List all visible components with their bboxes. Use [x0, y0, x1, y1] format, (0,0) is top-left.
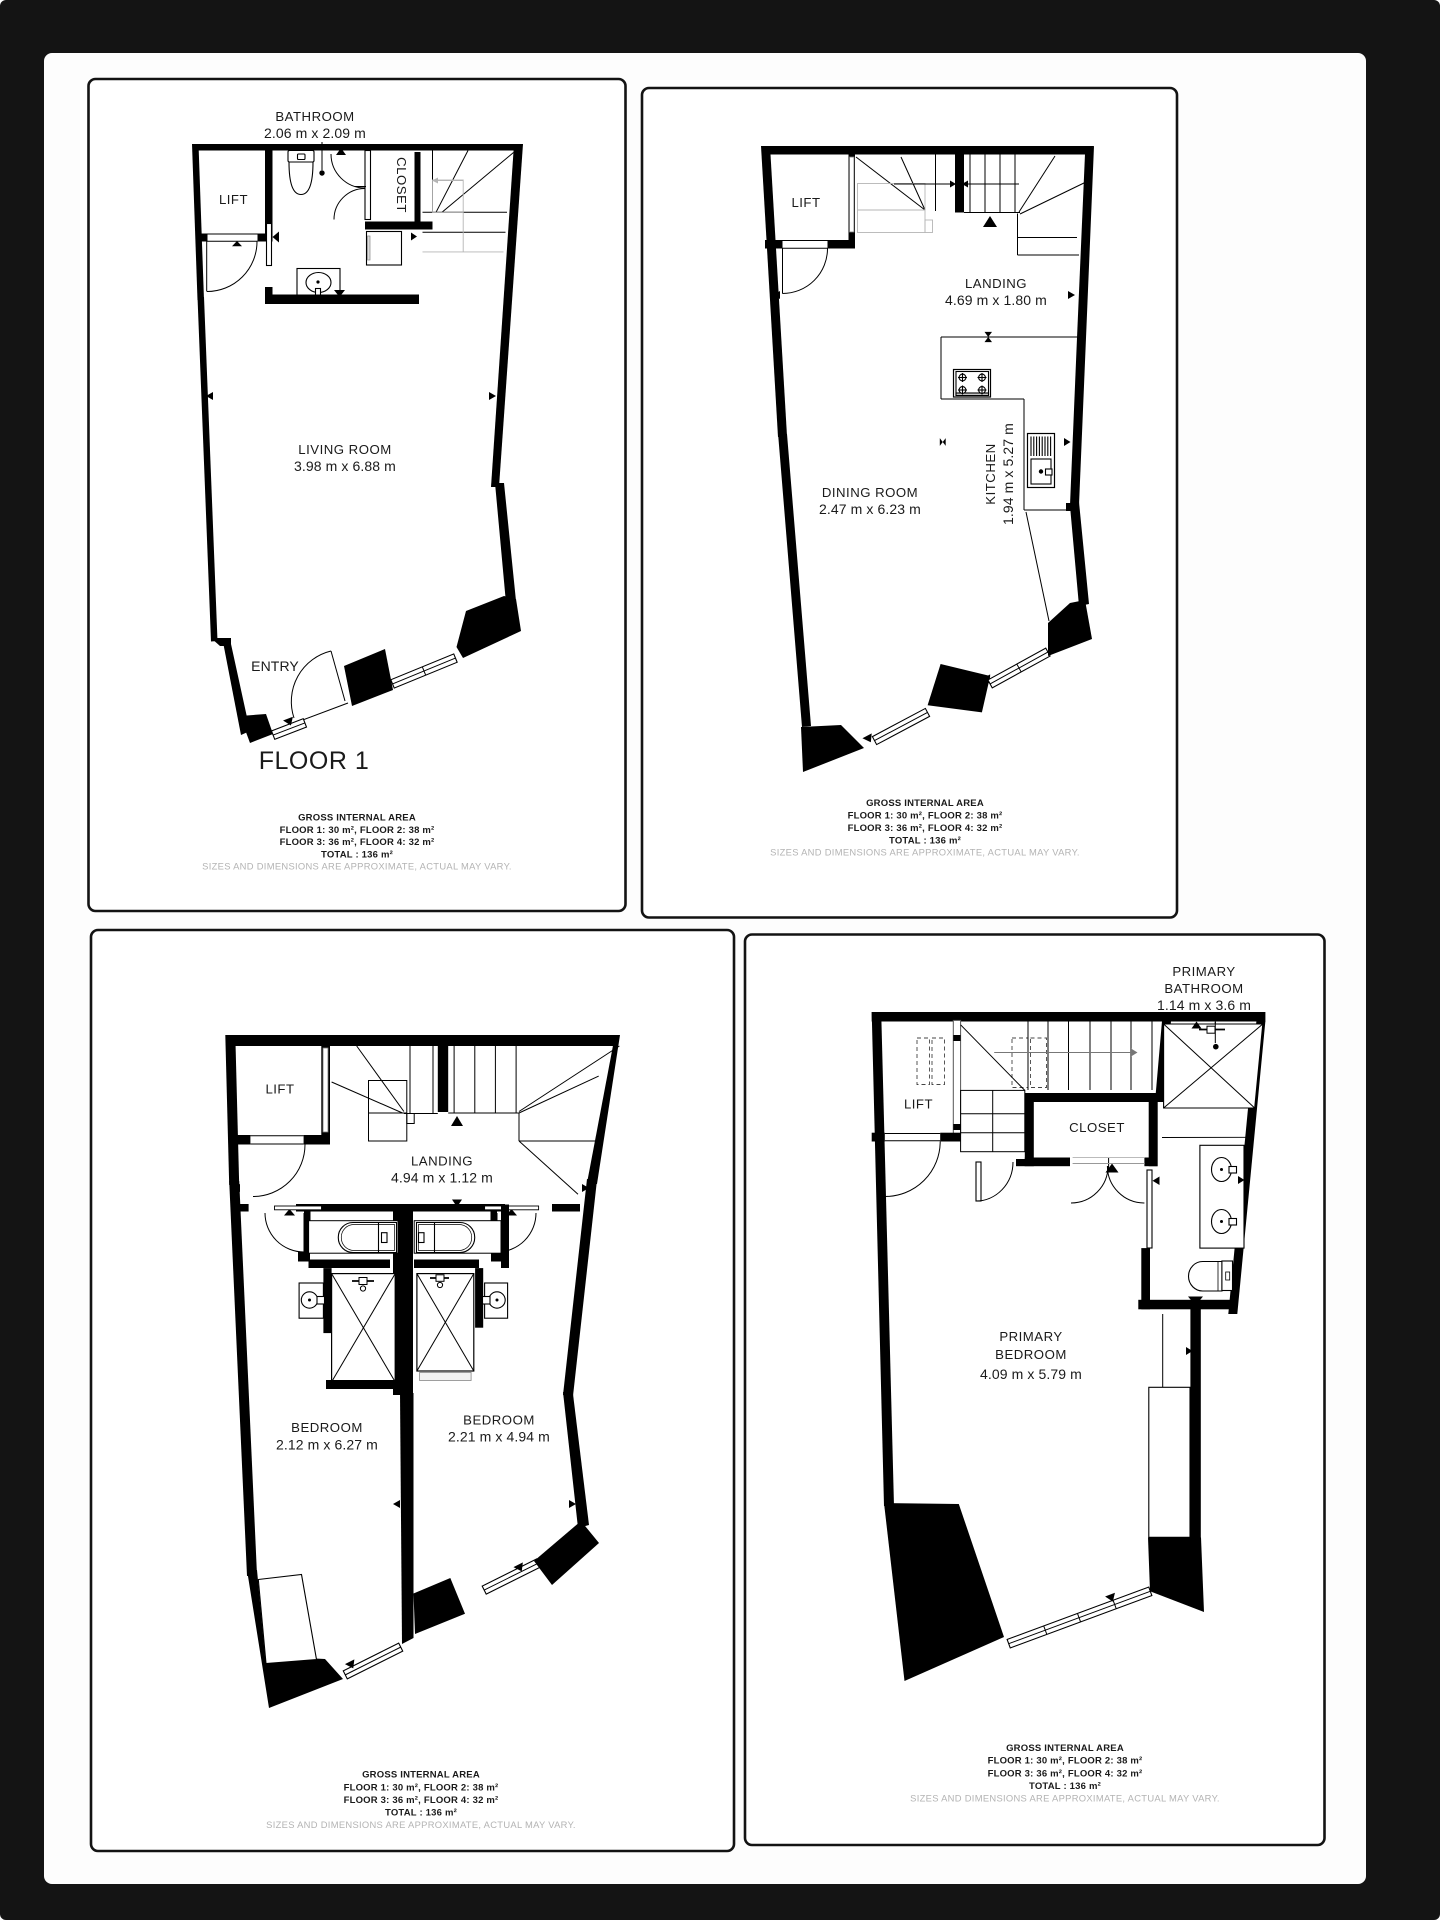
svg-text:FLOOR 1: FLOOR 1: [259, 747, 369, 775]
svg-text:BEDROOM: BEDROOM: [463, 1413, 535, 1428]
svg-text:FLOOR 3: 36 m², FLOOR 4: 32 m²: FLOOR 3: 36 m², FLOOR 4: 32 m²: [280, 837, 435, 848]
svg-text:GROSS INTERNAL AREA: GROSS INTERNAL AREA: [362, 1770, 480, 1781]
svg-text:SIZES AND DIMENSIONS ARE APPRO: SIZES AND DIMENSIONS ARE APPROXIMATE, AC…: [770, 847, 1080, 858]
svg-text:LIFT: LIFT: [265, 1082, 294, 1097]
svg-text:FLOOR 1: 30 m², FLOOR 2: 38 m²: FLOOR 1: 30 m², FLOOR 2: 38 m²: [848, 811, 1003, 822]
svg-text:FLOOR 1: 30 m², FLOOR 2: 38 m²: FLOOR 1: 30 m², FLOOR 2: 38 m²: [344, 1782, 499, 1793]
svg-text:GROSS INTERNAL AREA: GROSS INTERNAL AREA: [866, 798, 984, 809]
svg-text:SIZES AND DIMENSIONS ARE APPRO: SIZES AND DIMENSIONS ARE APPROXIMATE, AC…: [266, 1819, 576, 1830]
svg-text:CLOSET: CLOSET: [394, 157, 409, 213]
svg-text:BATHROOM: BATHROOM: [1164, 981, 1243, 996]
svg-text:FLOOR 3: 36 m², FLOOR 4: 32 m²: FLOOR 3: 36 m², FLOOR 4: 32 m²: [848, 823, 1003, 834]
svg-text:1.14 m x 3.6 m: 1.14 m x 3.6 m: [1157, 997, 1251, 1013]
svg-text:3.98 m x 6.88 m: 3.98 m x 6.88 m: [294, 458, 396, 474]
svg-text:TOTAL : 136 m²: TOTAL : 136 m²: [889, 835, 961, 846]
svg-text:2.21 m x 4.94 m: 2.21 m x 4.94 m: [448, 1429, 550, 1445]
svg-text:LIFT: LIFT: [219, 192, 248, 207]
svg-text:4.69 m x 1.80 m: 4.69 m x 1.80 m: [945, 292, 1047, 308]
svg-text:LANDING: LANDING: [411, 1154, 473, 1169]
svg-text:TOTAL : 136 m²: TOTAL : 136 m²: [1029, 1781, 1101, 1792]
svg-text:PRIMARY: PRIMARY: [1172, 964, 1235, 979]
svg-text:CLOSET: CLOSET: [1069, 1120, 1125, 1135]
svg-text:4.94 m x 1.12 m: 4.94 m x 1.12 m: [391, 1170, 493, 1186]
svg-text:1.94 m x 5.27 m: 1.94 m x 5.27 m: [1000, 423, 1016, 525]
svg-text:DINING ROOM: DINING ROOM: [822, 485, 918, 500]
svg-text:BEDROOM: BEDROOM: [291, 1420, 363, 1435]
svg-text:LIVING ROOM: LIVING ROOM: [298, 442, 391, 457]
svg-text:KITCHEN: KITCHEN: [983, 443, 998, 504]
svg-text:SIZES AND DIMENSIONS ARE APPRO: SIZES AND DIMENSIONS ARE APPROXIMATE, AC…: [910, 1793, 1220, 1804]
svg-text:2.12 m x 6.27 m: 2.12 m x 6.27 m: [276, 1437, 378, 1453]
svg-text:LIFT: LIFT: [904, 1097, 933, 1112]
svg-text:FLOOR 3: 36 m², FLOOR 4: 32 m²: FLOOR 3: 36 m², FLOOR 4: 32 m²: [988, 1768, 1143, 1779]
svg-text:GROSS INTERNAL AREA: GROSS INTERNAL AREA: [1006, 1743, 1124, 1754]
svg-text:TOTAL : 136 m²: TOTAL : 136 m²: [321, 850, 393, 861]
svg-text:2.47 m x 6.23 m: 2.47 m x 6.23 m: [819, 501, 921, 517]
svg-text:2.06 m x 2.09 m: 2.06 m x 2.09 m: [264, 125, 366, 141]
svg-text:BATHROOM: BATHROOM: [275, 109, 354, 124]
svg-text:PRIMARY: PRIMARY: [999, 1329, 1062, 1344]
svg-text:FLOOR 1: 30 m², FLOOR 2: 38 m²: FLOOR 1: 30 m², FLOOR 2: 38 m²: [988, 1756, 1143, 1767]
svg-text:SIZES AND DIMENSIONS ARE APPRO: SIZES AND DIMENSIONS ARE APPROXIMATE, AC…: [202, 861, 512, 872]
svg-text:4.09 m x 5.79 m: 4.09 m x 5.79 m: [980, 1366, 1082, 1382]
svg-text:GROSS INTERNAL AREA: GROSS INTERNAL AREA: [298, 813, 416, 824]
svg-text:FLOOR 1: 30 m², FLOOR 2: 38 m²: FLOOR 1: 30 m², FLOOR 2: 38 m²: [280, 825, 435, 836]
svg-text:BEDROOM: BEDROOM: [995, 1347, 1067, 1362]
svg-text:LIFT: LIFT: [791, 195, 820, 210]
svg-text:ENTRY: ENTRY: [251, 658, 299, 674]
svg-text:FLOOR 3: 36 m², FLOOR 4: 32 m²: FLOOR 3: 36 m², FLOOR 4: 32 m²: [344, 1795, 499, 1806]
svg-text:TOTAL : 136 m²: TOTAL : 136 m²: [385, 1807, 457, 1818]
svg-text:LANDING: LANDING: [965, 276, 1027, 291]
